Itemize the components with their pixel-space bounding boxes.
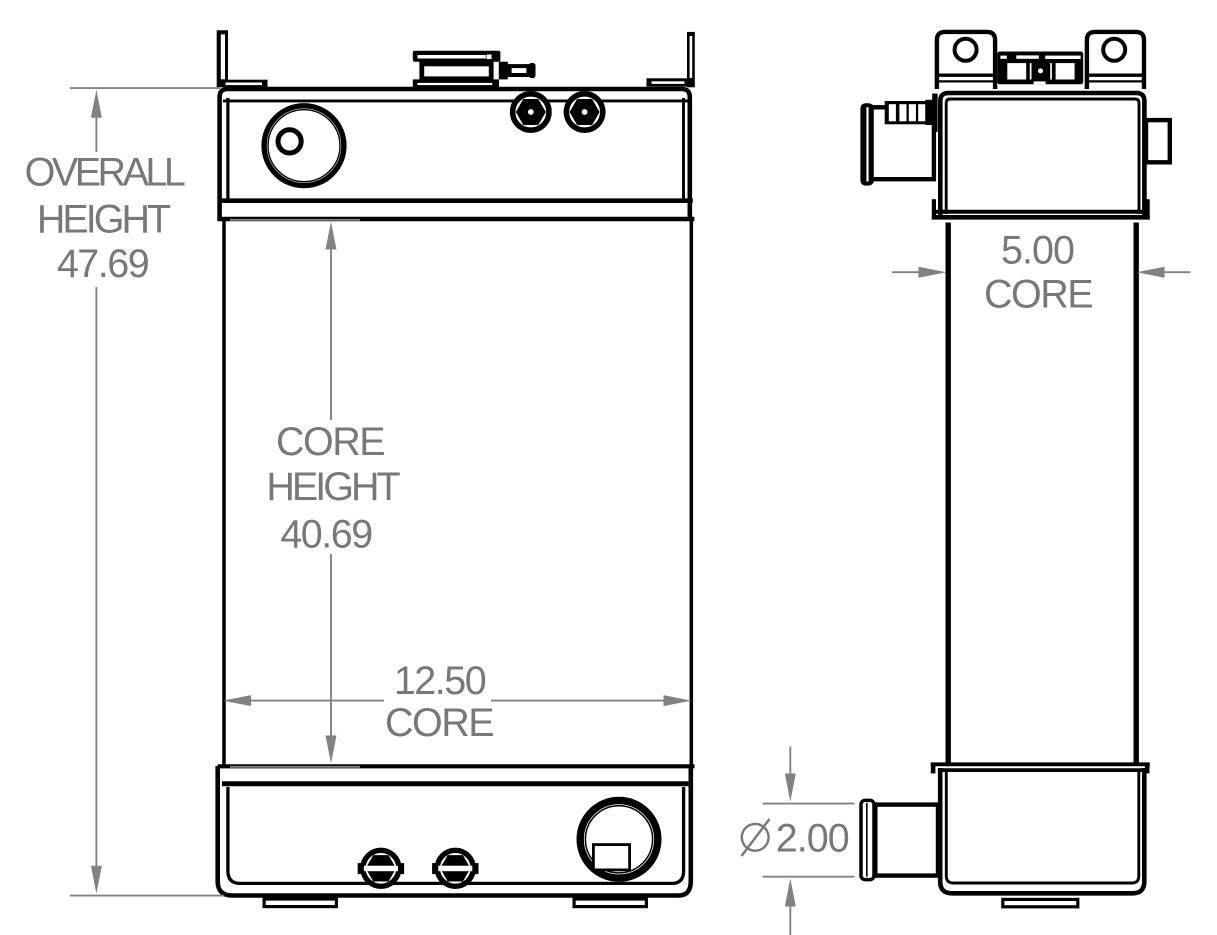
svg-text:HEIGHT: HEIGHT: [37, 198, 171, 242]
svg-text:5.00: 5.00: [1001, 229, 1074, 273]
svg-text:CORE: CORE: [276, 420, 384, 464]
svg-text:12.50: 12.50: [394, 659, 486, 703]
svg-text:2.00: 2.00: [776, 817, 849, 861]
svg-text:OVERALL: OVERALL: [25, 150, 185, 194]
svg-text:47.69: 47.69: [57, 242, 149, 286]
svg-text:HEIGHT: HEIGHT: [266, 465, 400, 509]
svg-text:CORE: CORE: [385, 701, 493, 745]
svg-text:40.69: 40.69: [280, 513, 372, 557]
svg-text:CORE: CORE: [984, 273, 1092, 317]
